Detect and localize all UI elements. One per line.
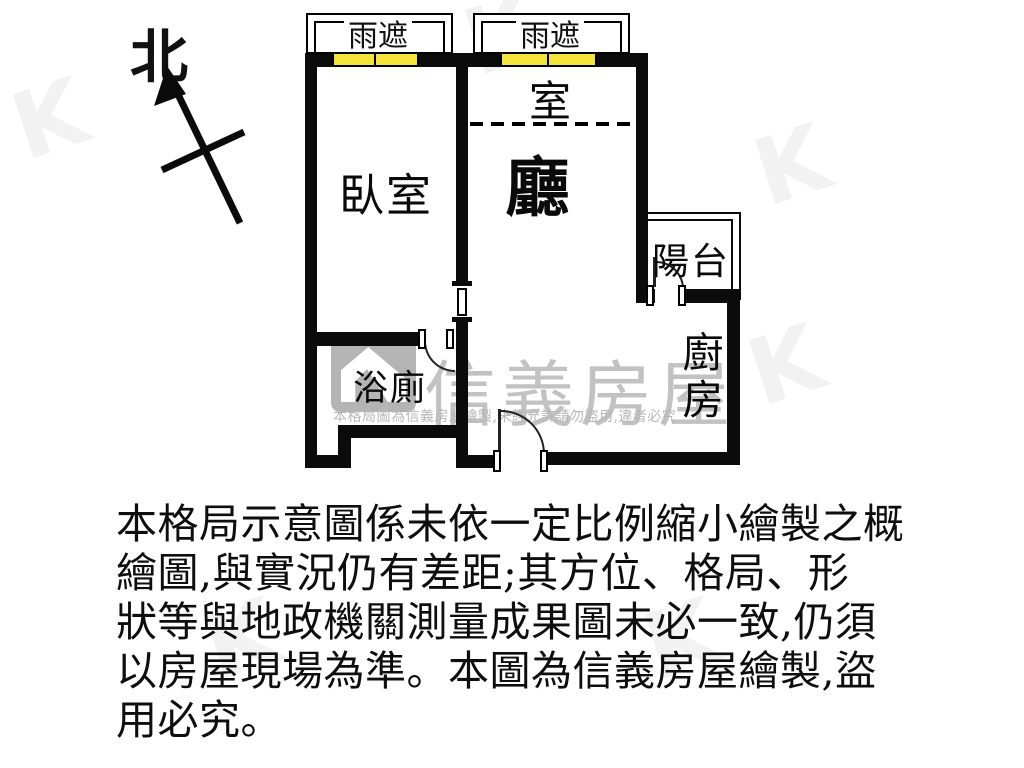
living-room-label: 廳 — [500, 148, 575, 218]
wall — [547, 452, 740, 465]
door-jamb — [540, 450, 548, 472]
wall — [636, 53, 648, 303]
wall — [305, 53, 317, 467]
door-jamb — [678, 285, 686, 306]
kitchen-label: 廚房 — [676, 324, 722, 432]
disclaimer-line: 用必究。 — [116, 696, 905, 745]
disclaimer: 本格局示意圖係未依一定比例縮小繪製之概 繪圖,與實況仍有差距;其方位、格局、形 … — [116, 500, 905, 745]
disclaimer-line: 以房屋現場為準。本圖為信義房屋繪製,盜 — [116, 647, 905, 696]
door-jamb — [646, 285, 654, 306]
canopy-right-label: 雨遮 — [516, 15, 584, 51]
disclaimer-line: 狀等與地政機關測量成果圖未必一致,仍須 — [116, 598, 905, 647]
balcony-label: 陽台 — [650, 238, 732, 278]
wall-cap — [452, 281, 472, 286]
background-watermark-tile: K — [735, 304, 836, 428]
north-arrow-icon — [140, 58, 290, 238]
disclaimer-line: 繪圖,與實況仍有差距;其方位、格局、形 — [116, 549, 905, 598]
door-jamb — [446, 329, 454, 349]
background-watermark-tile: K — [741, 104, 842, 228]
disclaimer-line: 本格局示意圖係未依一定比例縮小繪製之概 — [116, 500, 905, 549]
door-jamb — [493, 450, 501, 472]
wall — [456, 322, 468, 468]
wall — [456, 53, 468, 285]
wall — [305, 455, 351, 468]
bathroom-label: 浴廁 — [350, 366, 430, 404]
bedroom-door — [457, 288, 467, 316]
door-jamb — [418, 329, 426, 349]
wall — [338, 425, 468, 438]
bedroom-label: 臥室 — [338, 168, 434, 214]
background-watermark-tile: K — [0, 58, 100, 182]
canopy-left-label: 雨遮 — [344, 15, 412, 51]
wall — [680, 289, 740, 303]
window-divider — [547, 52, 549, 67]
wall — [305, 332, 423, 346]
room-upper-label: 室 — [510, 76, 590, 120]
wall-cap — [452, 317, 472, 322]
floorplan-page: K K K K K K 北 信義房屋 本格局圖為信義房屋繪製,未經允許請勿盜用,… — [0, 0, 1024, 768]
wall — [466, 455, 496, 468]
window-divider — [374, 52, 376, 67]
